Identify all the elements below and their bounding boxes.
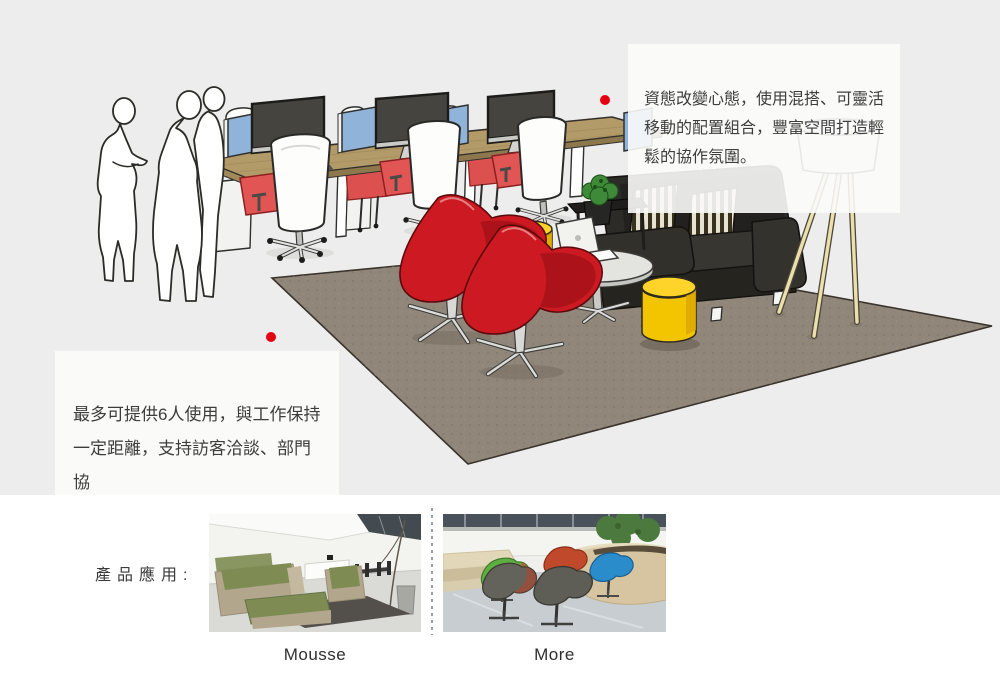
product-more[interactable]: More xyxy=(443,514,666,665)
callout-dot-top xyxy=(600,95,610,105)
product-mousse-image xyxy=(209,514,421,632)
hero-section: 資態改變心態，使用混搭、可靈活 移動的配置組合，豐富空間打造輕 鬆的協作氛圍。 … xyxy=(0,0,1000,495)
standing-figures xyxy=(98,87,225,301)
callout-dot-left xyxy=(266,332,276,342)
dashed-divider xyxy=(431,508,433,635)
callout-flexibility-text: 資態改變心態，使用混搭、可靈活 移動的配置組合，豐富空間打造輕 鬆的協作氛圍。 xyxy=(644,85,886,172)
products-label: 產品應用: xyxy=(95,561,193,585)
product-more-image xyxy=(443,514,666,632)
callout-flexibility: 資態改變心態，使用混搭、可靈活 移動的配置組合，豐富空間打造輕 鬆的協作氛圍。 xyxy=(628,44,900,213)
product-mousse-label: Mousse xyxy=(209,645,421,665)
product-mousse[interactable]: Mousse xyxy=(209,514,421,665)
product-more-label: More xyxy=(443,645,666,665)
products-section: 產品應用: xyxy=(0,495,1000,698)
